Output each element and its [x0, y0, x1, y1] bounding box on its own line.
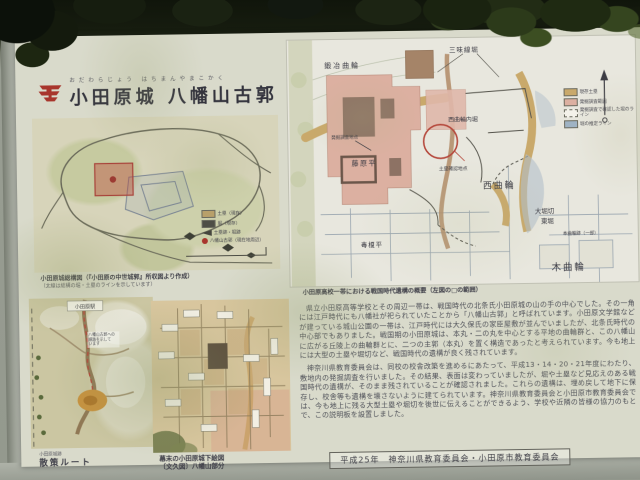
- foliage-top-right: [408, 0, 640, 50]
- label-nishi-uchibori: 西曲輪内堀: [448, 115, 478, 123]
- overview-map: 土塁（現存） 堀（現存） 土塁跡・堀跡 八幡山古郭（現在地周辺）: [32, 115, 280, 273]
- odawara-emblem-icon: [37, 82, 63, 106]
- overview-map-legend: 土塁（現存） 堀（現存） 土塁跡・堀跡 八幡山古郭（現在地周辺）: [201, 209, 276, 246]
- label-dokue-daira: 毒榎平: [361, 240, 383, 249]
- castle-core-lines: [125, 171, 194, 220]
- title-block: おだわらじょう はちまんやまこかく 小田原城 八幡山古郭: [69, 72, 320, 110]
- overview-map-drawing: [32, 115, 280, 273]
- edo-map-drawing: [151, 299, 291, 453]
- page-title: 小田原城 八幡山古郭: [69, 80, 319, 110]
- legend-item: 現存土塁: [564, 87, 634, 96]
- label-fujiwara-daira: 藤原平: [352, 158, 377, 167]
- route-map-drawing: 小田原駅: [29, 297, 155, 449]
- edo-map-caption: 幕末の小田原城下絵図 〔文久図〕八幡山部分: [159, 453, 299, 471]
- outline-swatch: [564, 109, 578, 117]
- label-obori-2: 東堀: [541, 216, 554, 225]
- paragraph-1: 県立小田原高等学校とその周辺一帯は、戦国時代の北条氏小田原城の山の手の中心でした…: [299, 299, 636, 361]
- legend-item: 堀（現存）: [202, 219, 276, 228]
- legend-item: 堀の推定ライン: [564, 119, 634, 128]
- description-text: 県立小田原高等学校とその周辺一帯は、戦国時代の北条氏小田原城の山の手の中心でした…: [299, 299, 637, 425]
- dark-swatch: [202, 220, 216, 228]
- site-map-caption: 小田原高校一帯における戦国時代遺構の概要（左図の□の範囲）: [303, 284, 635, 297]
- legend-item: 土塁（現存）: [201, 209, 275, 218]
- label-dorui-point: 土塁確認地点: [439, 165, 468, 172]
- label-kaji-kuruwa: 鍛冶曲輪: [324, 60, 360, 70]
- signboard-photo: おだわらじょう はちまんやまこかく 小田原城 八幡山古郭 土塁（現存）: [0, 0, 640, 480]
- school-building: [343, 97, 375, 137]
- foliage-top-left: [0, 0, 94, 72]
- tan-swatch: [201, 210, 215, 218]
- moat-ribbon: [439, 54, 455, 249]
- hachiman-shrine-block: [208, 343, 228, 369]
- legend-item: 八幡山古郭（現在地周辺）: [202, 237, 276, 244]
- legend-item: 土塁跡・堀跡: [202, 229, 276, 236]
- site-map: 鍛冶曲輪 三味線堀 西曲輪内堀 西曲輪 藤原平 発掘調査地点 土塁確認地点 大堀…: [287, 35, 639, 286]
- label-nishi-kuruwa: 西曲輪: [483, 179, 516, 192]
- overview-map-caption: 小田原城総構図（『小田原の中世城郭』所収図より作成） （太線は総構の堀・土塁のラ…: [40, 272, 292, 290]
- paragraph-2: 神奈川県教育委員会は、同校の校舎改築を進めるにあたって、平成13・14・20・2…: [300, 360, 637, 422]
- blue-swatch: [564, 120, 578, 128]
- label-obori-1: 大堀切: [535, 206, 555, 215]
- route-map: 小田原駅 八幡山古郭への 順路を示して います: [29, 297, 155, 449]
- edo-period-map: [151, 299, 291, 453]
- site-map-drawing: 鍛冶曲輪 三味線堀 西曲輪内堀 西曲輪 藤原平 発掘調査地点 土塁確認地点 大堀…: [287, 35, 639, 286]
- information-sign: おだわらじょう はちまんやまこかく 小田原城 八幡山古郭 土塁（現存）: [15, 27, 640, 467]
- legend-item: 発掘調査で確認した堀のライン: [564, 107, 634, 118]
- label-kikuruwa: 木曲輪: [552, 261, 586, 274]
- route-note: 八幡山古郭への 順路を示して います: [87, 331, 119, 347]
- red-dot-swatch: [202, 238, 208, 244]
- label-honkuruwa-ato: 本曲輪跡（一部）: [563, 229, 599, 237]
- site-map-legend: 現存土塁 発掘調査範囲 発掘調査で確認した堀のライン 堀の推定ライン: [564, 87, 635, 130]
- legend-item: 発掘調査範囲: [564, 97, 634, 106]
- pink-swatch: [564, 98, 578, 106]
- route-map-caption: 小田原城跡 散策ルート: [39, 451, 159, 467]
- arrow-swatch: [202, 230, 212, 236]
- tan-swatch: [564, 88, 578, 96]
